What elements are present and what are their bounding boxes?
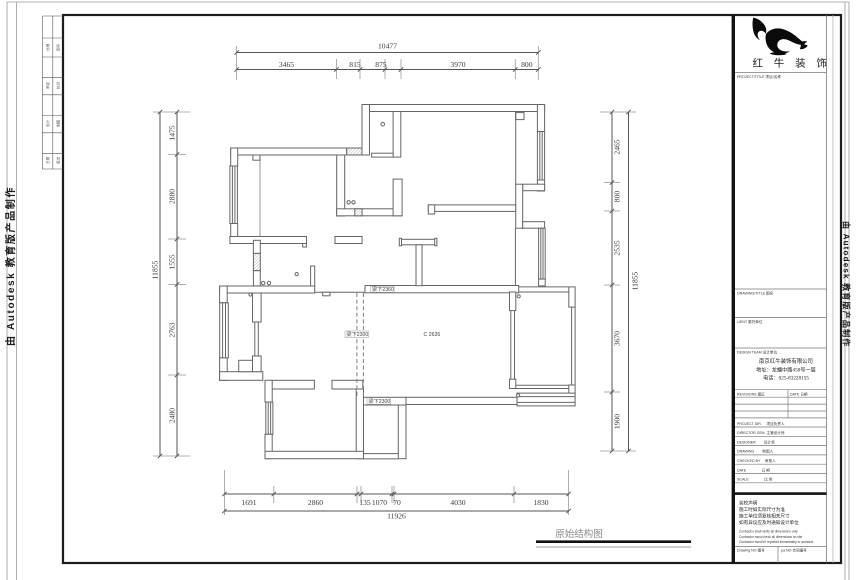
svg-text:比例: 比例 (45, 43, 50, 51)
svg-text:800: 800 (613, 191, 622, 203)
svg-text:DATE 日期: DATE 日期 (790, 391, 808, 396)
svg-text:875: 875 (375, 60, 387, 69)
svg-text:pa NO 合同编号: pa NO 合同编号 (781, 548, 807, 553)
svg-text:日期: 日期 (45, 156, 50, 164)
svg-text:DRAWING 制图人: DRAWING 制图人 (737, 449, 774, 454)
svg-text:梁下2300: 梁下2300 (368, 397, 390, 405)
svg-text:PROJECT DIR. 项目负责人: PROJECT DIR. 项目负责人 (737, 421, 785, 426)
svg-text:DATE 日 期: DATE 日 期 (737, 467, 770, 472)
svg-text:2480: 2480 (167, 408, 176, 423)
svg-text:装校声明: 装校声明 (739, 500, 758, 507)
svg-text:3465: 3465 (279, 60, 294, 69)
svg-text:红牛装饰: 红牛装饰 (753, 57, 838, 70)
svg-text:1555: 1555 (167, 254, 176, 269)
svg-text:800: 800 (521, 60, 533, 69)
svg-text:Contractor must be reported im: Contractor must be reported immediately … (739, 540, 813, 544)
svg-text:制图: 制图 (56, 119, 61, 127)
svg-text:1475: 1475 (167, 125, 176, 140)
svg-text:2860: 2860 (308, 498, 323, 507)
svg-text:DRAWING/TITLE 图名: DRAWING/TITLE 图名 (737, 291, 774, 296)
svg-text:DIRECTOR GEN. 主管设计师: DIRECTOR GEN. 主管设计师 (737, 430, 785, 435)
svg-text:原始结构图: 原始结构图 (555, 528, 603, 540)
svg-text:梁下2360: 梁下2360 (372, 285, 394, 293)
svg-text:地址：龙蟠中路458号一层: 地址：龙蟠中路458号一层 (756, 366, 816, 374)
svg-text:校对: 校对 (56, 81, 61, 89)
svg-text:施工时如实际尺寸为准: 施工时如实际尺寸为准 (739, 506, 785, 513)
svg-text:70: 70 (393, 498, 401, 507)
svg-text:Contractor must check all dime: Contractor must check all dimensions on … (739, 535, 802, 539)
svg-text:由 Autodesk 教育版产品制作: 由 Autodesk 教育版产品制作 (4, 186, 17, 346)
svg-text:1691: 1691 (241, 498, 256, 507)
svg-text:梁下2300: 梁下2300 (346, 330, 368, 338)
svg-text:版次: 版次 (56, 156, 61, 164)
svg-text:C 2635: C 2635 (424, 332, 441, 338)
svg-text:1830: 1830 (533, 498, 548, 507)
svg-text:135: 135 (359, 498, 371, 507)
svg-text:南京红牛装饰有限公司: 南京红牛装饰有限公司 (759, 357, 813, 365)
svg-text:PROJECT/TITLE 项目/名称: PROJECT/TITLE 项目/名称 (737, 74, 781, 79)
svg-text:11926: 11926 (387, 512, 406, 521)
svg-text:SCALE 比 例: SCALE 比 例 (737, 477, 773, 482)
svg-text:4030: 4030 (450, 498, 465, 507)
svg-text:DESIGNER 设计师: DESIGNER 设计师 (737, 439, 775, 444)
svg-text:由 Autodesk 教育版产品制作: 由 Autodesk 教育版产品制作 (842, 221, 852, 348)
svg-text:1070: 1070 (372, 498, 387, 507)
svg-text:2465: 2465 (613, 139, 622, 154)
svg-text:REVISIONS 图区: REVISIONS 图区 (737, 392, 765, 396)
svg-text:2880: 2880 (167, 189, 176, 204)
svg-text:2763: 2763 (167, 322, 176, 337)
svg-text:Contractor shall verify all di: Contractor shall verify all dimensions o… (739, 530, 798, 534)
svg-text:设计: 设计 (45, 119, 50, 127)
svg-text:施工单位须复核相关尺寸: 施工单位须复核相关尺寸 (739, 513, 790, 520)
svg-text:CHECKED BY 审核人: CHECKED BY 审核人 (737, 458, 776, 463)
svg-text:815: 815 (349, 60, 361, 69)
svg-text:LIENT 委托单位: LIENT 委托单位 (737, 319, 763, 324)
svg-text:图号: 图号 (56, 43, 61, 51)
svg-text:电话：025-83228155: 电话：025-83228155 (763, 374, 809, 382)
svg-text:3970: 3970 (450, 60, 465, 69)
svg-text:审定: 审定 (45, 81, 50, 89)
svg-text:如有异议应及时通知设计单位: 如有异议应及时通知设计单位 (739, 519, 799, 526)
svg-text:11855: 11855 (630, 271, 639, 290)
svg-text:DESIGN TEAM 设计单位: DESIGN TEAM 设计单位 (737, 350, 777, 355)
svg-text:10477: 10477 (378, 42, 397, 51)
svg-text:1900: 1900 (613, 414, 622, 429)
svg-text:11855: 11855 (150, 260, 159, 279)
svg-text:2535: 2535 (613, 240, 622, 255)
svg-text:3670: 3670 (613, 331, 622, 346)
svg-text:Drawing NO 图号: Drawing NO 图号 (737, 548, 765, 553)
